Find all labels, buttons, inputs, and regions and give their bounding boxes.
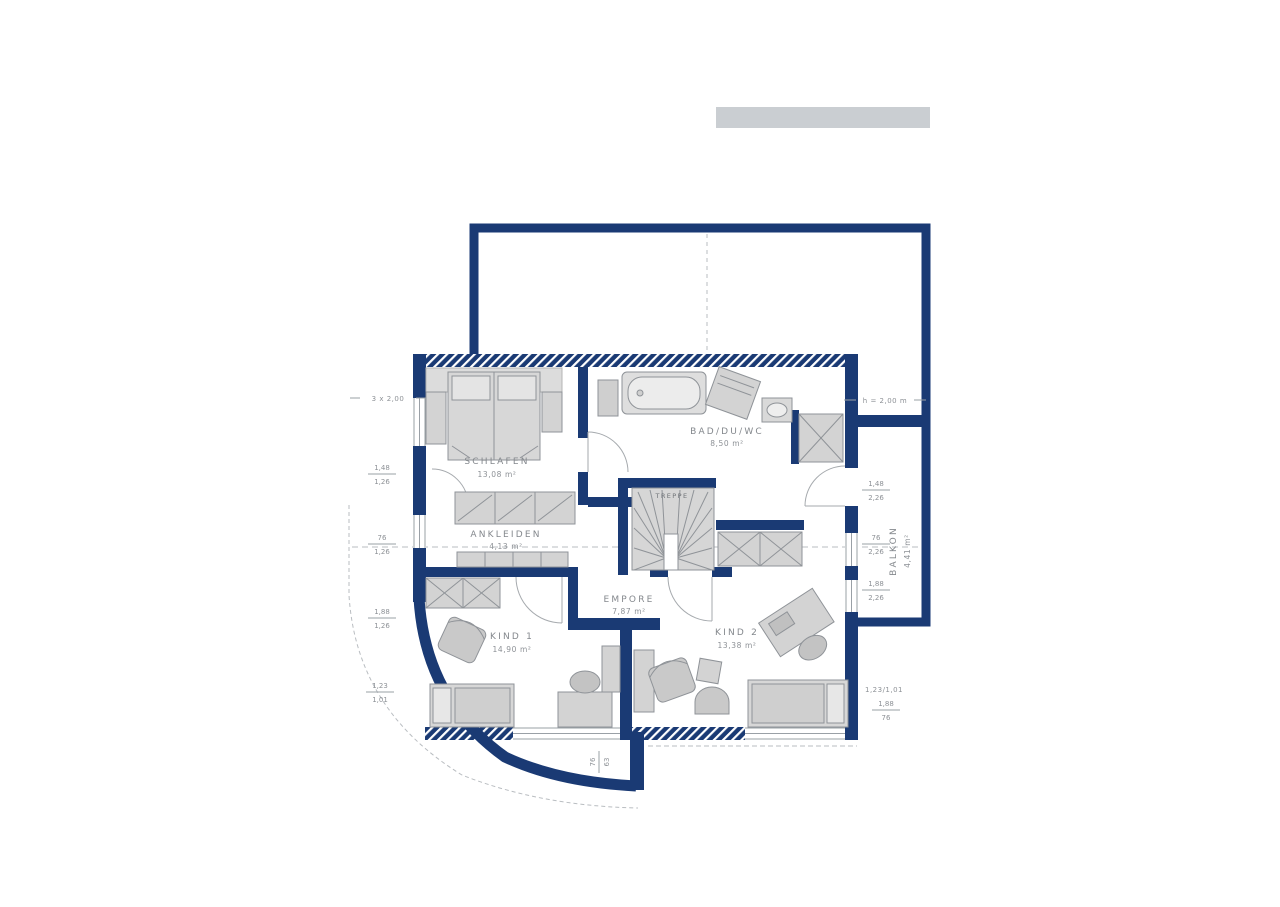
room-label-kind2: KIND 2 [715, 628, 759, 638]
dim-left-1: 76 1,26 [368, 534, 396, 556]
wall-notch [568, 577, 578, 618]
sideboard-row [457, 552, 568, 567]
side-table-kind2 [696, 658, 721, 683]
floor-plan-page: SCHLAFEN 13,08 m² ANKLEIDEN 4,13 m² BAD/… [0, 0, 1280, 907]
bed-kind1 [430, 684, 514, 727]
wall-schlafen-bad [578, 367, 588, 438]
dim-right-1: 76 2,26 [862, 534, 890, 556]
door-arc-bad [588, 432, 628, 472]
svg-text:1,26: 1,26 [374, 622, 390, 630]
svg-text:76: 76 [589, 757, 597, 766]
room-label-balkon: BALKON [889, 526, 899, 576]
floor-plan-drawing: SCHLAFEN 13,08 m² ANKLEIDEN 4,13 m² BAD/… [0, 0, 1280, 907]
svg-text:63: 63 [603, 758, 611, 767]
wall-kind1-top [413, 567, 578, 577]
svg-text:1,88: 1,88 [868, 580, 884, 588]
wall-hall [716, 520, 804, 530]
x-closet-hall [718, 532, 802, 566]
desk-kind2 [759, 588, 846, 674]
double-bed [426, 368, 562, 460]
bathtub [622, 372, 706, 414]
window [845, 580, 858, 612]
svg-text:1,26: 1,26 [374, 478, 390, 486]
wardrobe-row [455, 492, 575, 524]
svg-text:2,26: 2,26 [868, 494, 884, 502]
window [580, 727, 627, 740]
svg-text:76: 76 [872, 534, 881, 542]
dim-bottom-center: 76 63 [589, 751, 611, 773]
logo-placeholder [716, 107, 930, 128]
svg-text:3 x 2,00: 3 x 2,00 [372, 395, 405, 403]
staircase [632, 488, 714, 570]
stool-kind2 [695, 687, 729, 714]
annotation-bottom-right-window: 1,23/1,01 [865, 686, 903, 694]
shower [799, 414, 843, 462]
window [413, 515, 426, 548]
svg-text:76: 76 [378, 534, 387, 542]
top-wall-hatched [413, 354, 857, 367]
svg-text:1,48: 1,48 [374, 464, 390, 472]
dim-right-2: 1,88 2,26 [862, 580, 890, 602]
door-arc-balcony [805, 466, 845, 506]
bath-shelf [598, 380, 618, 416]
room-area-schlafen: 13,08 m² [478, 470, 517, 479]
svg-text:1,48: 1,48 [868, 480, 884, 488]
window [845, 533, 858, 566]
dim-curve: 1,23 1,01 [366, 682, 394, 704]
svg-text:1,26: 1,26 [374, 548, 390, 556]
door-arc-kind1 [516, 577, 562, 623]
room-area-bad: 8,50 m² [710, 439, 744, 448]
wall-kind2-west [620, 630, 632, 740]
room-label-treppe: TREPPE [655, 492, 689, 500]
x-wardrobe-kind1 [426, 578, 500, 608]
dim-bottom-right: 1,88 76 [872, 700, 900, 722]
svg-text:2,26: 2,26 [868, 548, 884, 556]
window [745, 727, 845, 740]
wall-empore-bottom [568, 618, 660, 630]
svg-text:h = 2,00 m: h = 2,00 m [863, 397, 907, 405]
room-area-balkon: 4,41 m² [903, 534, 912, 568]
svg-text:1,01: 1,01 [372, 696, 388, 704]
window [413, 398, 426, 446]
dim-right-0: 1,48 2,26 [862, 480, 890, 502]
curve-end-wall [630, 732, 644, 790]
wall-stairs-left [618, 478, 628, 575]
wall-kind2-top-right [712, 567, 732, 577]
svg-text:1,88: 1,88 [878, 700, 894, 708]
room-area-empore: 7,87 m² [612, 607, 646, 616]
room-label-kind1: KIND 1 [490, 632, 534, 642]
dim-left-2: 1,88 1,26 [368, 608, 396, 630]
door-arc-kind2 [668, 577, 712, 621]
room-area-ankleiden: 4,13 m² [489, 542, 523, 551]
window [513, 727, 580, 740]
room-label-empore: EMPORE [603, 595, 654, 605]
room-label-schlafen: SCHLAFEN [464, 457, 529, 467]
room-area-kind1: 14,90 m² [493, 645, 532, 654]
wall-stairs-top [626, 478, 716, 488]
armchair-kind1 [436, 614, 488, 664]
bed-kind2 [748, 680, 848, 727]
svg-text:1,88: 1,88 [374, 608, 390, 616]
svg-text:76: 76 [882, 714, 891, 722]
shelf-empore [602, 646, 620, 692]
room-label-bad: BAD/DU/WC [690, 427, 764, 437]
svg-text:1,23: 1,23 [372, 682, 388, 690]
dim-left-0: 1,48 1,26 [368, 464, 396, 486]
svg-text:2,26: 2,26 [868, 594, 884, 602]
room-area-kind2: 13,38 m² [718, 641, 757, 650]
bath-chair [705, 367, 760, 420]
sink [762, 398, 792, 422]
room-label-ankleiden: ANKLEIDEN [470, 530, 541, 540]
